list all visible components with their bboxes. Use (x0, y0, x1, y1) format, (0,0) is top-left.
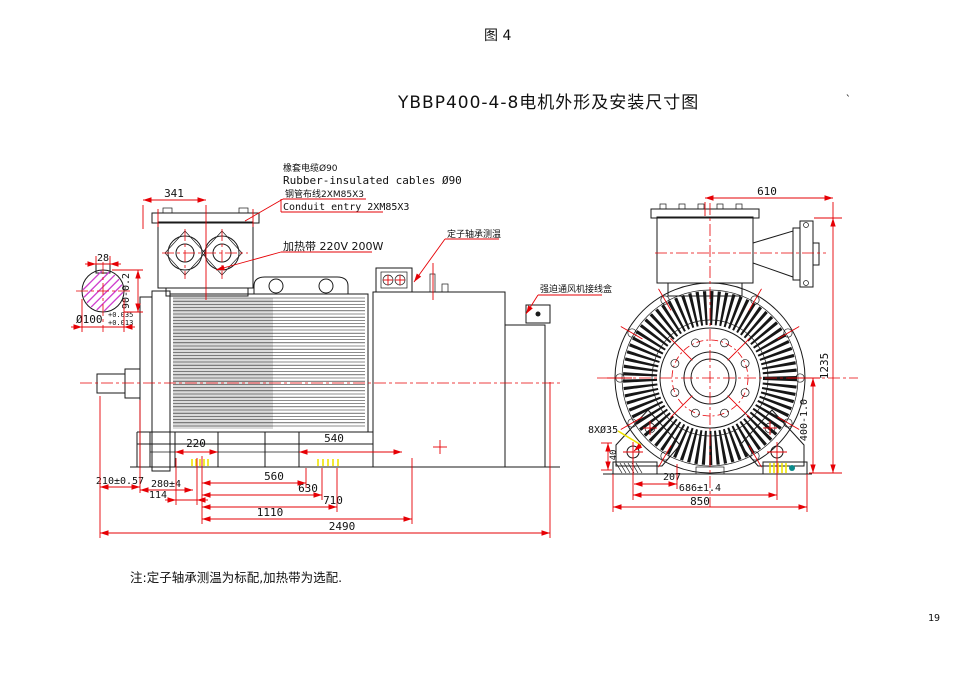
fan-junction-box-label: 强迫通风机接线盒 (540, 283, 612, 295)
dim-shaft-dia: Ø100 (76, 313, 103, 326)
drawing-title: YBBP400-4-8电机外形及安装尺寸图 (397, 93, 699, 113)
dim-710: 710 (323, 494, 343, 507)
drawing-note: 注:定子轴承测温为标配,加热带为选配. (130, 570, 342, 585)
cable-label-en: Rubber-insulated cables Ø90 (283, 174, 462, 187)
dim-1110: 1110 (257, 506, 284, 519)
dim-207: 207 (663, 472, 681, 483)
page-number: 19 (928, 613, 940, 624)
dim-1235: 1235 (818, 353, 831, 380)
dim-540: 540 (324, 432, 344, 445)
fan-housing (373, 292, 505, 467)
bearing-temp-label: 定子轴承测温 (447, 228, 501, 240)
dim-280: 280±4 (151, 479, 181, 490)
dim-8x35: 8XØ35 (588, 424, 618, 436)
dim-2490: 2490 (329, 520, 356, 533)
terminal-box-front (657, 217, 753, 283)
lifting-hole (269, 279, 283, 293)
dim-114: 114 (149, 490, 167, 501)
front-view (603, 204, 819, 474)
conduit-neck (753, 231, 793, 277)
dim-220: 220 (186, 437, 206, 450)
dim-341: 341 (164, 187, 184, 200)
engineering-drawing: 图 4 YBBP400-4-8电机外形及安装尺寸图 ` 19 橡套电缆Ø90 R… (0, 0, 962, 680)
bearing-temp-fitting (376, 268, 412, 292)
heater-label: 加热带 220V 200W (283, 240, 384, 253)
cable-label-cn: 橡套电缆Ø90 (283, 162, 338, 174)
dim-850: 850 (690, 495, 710, 508)
dim-610: 610 (757, 185, 777, 198)
dim-560: 560 (264, 470, 284, 483)
shaft (97, 374, 125, 393)
conduit-label-cn: 钢管布线2XM85X3 (285, 188, 364, 200)
drawing-page: 图 4 YBBP400-4-8电机外形及安装尺寸图 ` 19 橡套电缆Ø90 R… (0, 0, 962, 680)
figure-label: 图 4 (484, 28, 511, 44)
lifting-hole (319, 279, 333, 293)
title-tick: ` (845, 93, 852, 106)
dim-400: 400-1.0 (799, 399, 810, 441)
conduit-label-en: Conduit entry 2XM85X3 (283, 202, 409, 213)
dim-686: 686±1.4 (679, 483, 721, 494)
dim-210: 210±0.57 (96, 476, 144, 487)
forced-fan-unit (505, 325, 545, 467)
